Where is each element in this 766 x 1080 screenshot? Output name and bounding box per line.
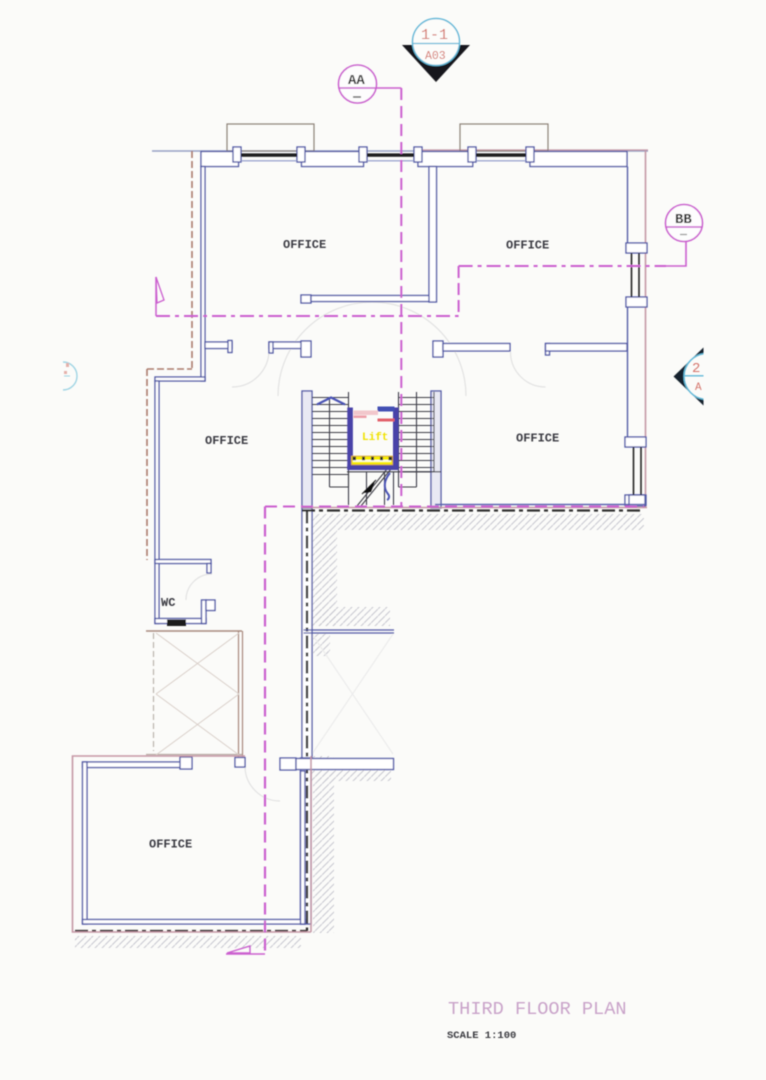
svg-text:OFFICE: OFFICE [516,432,559,446]
svg-text:A: A [695,382,702,394]
svg-text:OFFICE: OFFICE [205,434,248,448]
svg-text:BB: BB [675,212,692,228]
svg-text:2: 2 [692,361,700,377]
svg-text:SCALE 1:100: SCALE 1:100 [447,1030,516,1042]
svg-text:OFFICE: OFFICE [283,238,326,252]
svg-text:OFFICE: OFFICE [149,838,192,852]
svg-text:A03: A03 [425,50,446,63]
svg-text:AA: AA [348,73,365,89]
svg-text:OFFICE: OFFICE [506,239,549,253]
svg-text:1-1: 1-1 [421,27,448,44]
svg-text:Lift: Lift [362,432,388,444]
svg-text:WC: WC [161,596,175,610]
svg-text:THIRD FLOOR PLAN: THIRD FLOOR PLAN [448,999,627,1020]
